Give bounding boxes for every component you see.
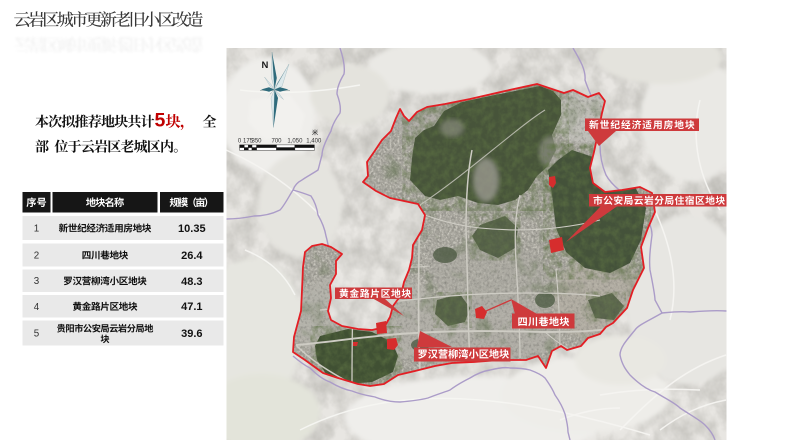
svg-text:N: N: [262, 60, 269, 71]
svg-text:1: 1: [34, 224, 39, 235]
svg-text:1,050: 1,050: [287, 138, 303, 144]
svg-text:26.4: 26.4: [181, 250, 203, 262]
svg-text:4: 4: [34, 302, 40, 313]
svg-text:10.35: 10.35: [178, 223, 206, 235]
svg-text:1,400: 1,400: [306, 138, 322, 144]
svg-text:2: 2: [34, 251, 39, 262]
svg-text:5: 5: [155, 110, 166, 132]
svg-text:350: 350: [251, 138, 262, 144]
svg-text:700: 700: [271, 138, 282, 144]
svg-text:3: 3: [34, 276, 40, 287]
svg-text:39.6: 39.6: [181, 328, 202, 340]
svg-text:5: 5: [34, 329, 40, 340]
svg-text:47.1: 47.1: [181, 301, 202, 313]
svg-text:48.3: 48.3: [181, 276, 202, 288]
